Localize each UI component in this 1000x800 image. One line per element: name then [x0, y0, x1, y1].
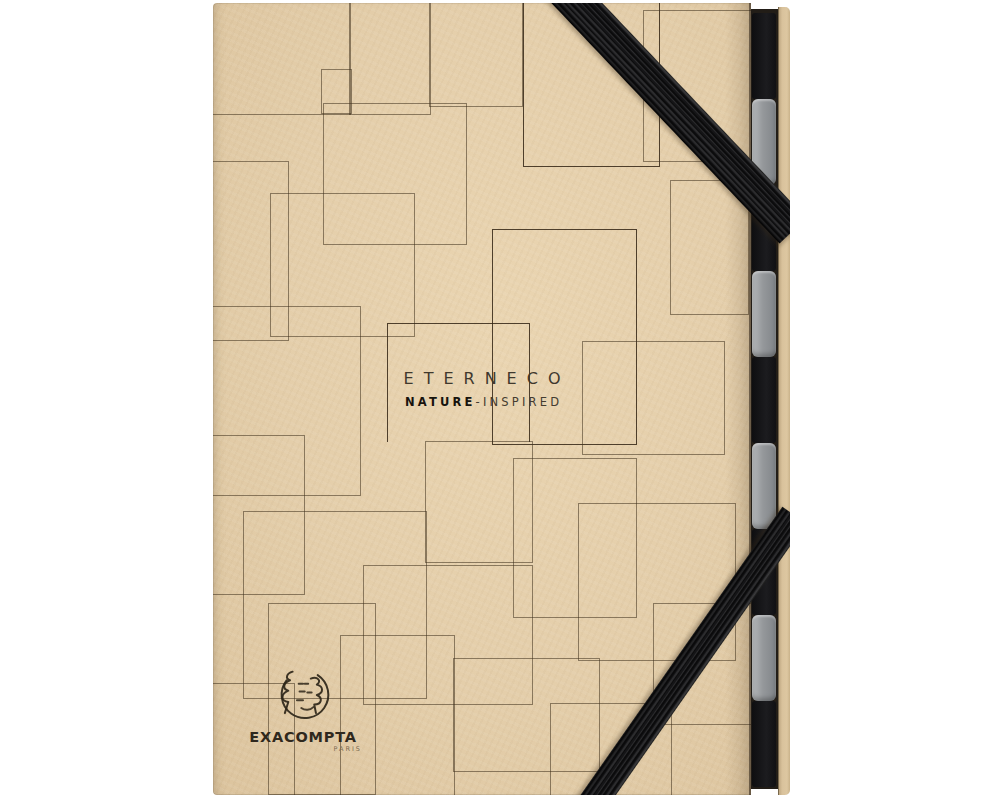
pine-trees-icon [238, 663, 368, 727]
product-photo: ETERNECO NATURE-INSPIRED EXACOM [0, 0, 1000, 800]
eterneco-folder: ETERNECO NATURE-INSPIRED EXACOM [213, 3, 790, 795]
pattern-square [429, 3, 523, 107]
brand-subtitle-bold: NATURE [405, 395, 476, 409]
maker-logo: EXACOMPTA PARIS [238, 663, 368, 753]
brand-block: ETERNECO NATURE-INSPIRED [213, 369, 751, 409]
pattern-square [323, 103, 467, 245]
exacompta-wordmark: EXACOMPTA [238, 729, 368, 745]
brand-title: ETERNECO [213, 369, 751, 388]
divider-tab-black [752, 13, 776, 99]
divider-tab-gray [752, 443, 776, 529]
divider-tabs-well [751, 9, 778, 789]
brand-subtitle-rest: -INSPIRED [476, 395, 563, 409]
pattern-square [349, 3, 431, 115]
back-cover-edge [778, 7, 790, 795]
brand-subtitle: NATURE-INSPIRED [213, 395, 751, 409]
paris-label: PARIS [238, 745, 368, 753]
divider-tab-gray [752, 615, 776, 701]
divider-tab-black [752, 357, 776, 443]
divider-tab-gray [752, 271, 776, 357]
pattern-square [670, 180, 749, 315]
divider-tab-black [752, 701, 776, 787]
